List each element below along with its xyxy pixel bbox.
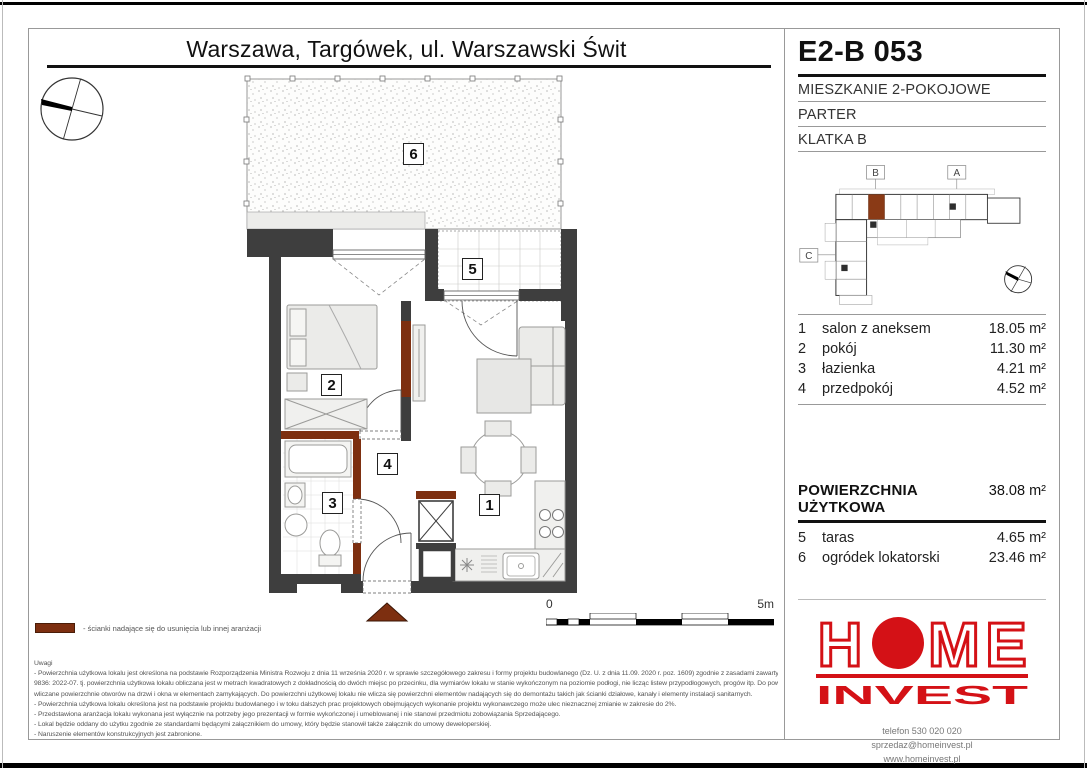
room-number-label-3: 3 [322,492,343,514]
brand-logo: H M E INVEST telefon 530 020 020 sprzeda… [798,610,1046,767]
content-frame: Warszawa, Targówek, ul. Warszawski Świt [28,28,1060,740]
outdoor-table: 5 taras 4.65 m² 6 ogródek lokatorski 23.… [798,523,1046,573]
room-name: ogródek lokatorski [822,550,989,566]
room-name: salon z aneksem [822,321,989,337]
brand-letter-e: E [985,611,1026,680]
divider [798,599,1046,600]
room-no: 1 [798,321,822,337]
wall-notch [297,584,341,593]
outdoor-row: 5 taras 4.65 m² [798,528,1046,548]
room-name: taras [822,530,997,546]
round-basin [285,514,307,536]
dining-table [471,431,527,487]
room-name: łazienka [822,361,997,377]
brand-rule [816,674,1028,678]
living-furniture [461,327,565,496]
notes: Uwagi - Powierzchnia użytkowa lokalu jes… [34,659,778,741]
room-row: 1 salon z aneksem 18.05 m² [798,319,1046,339]
info-panel: E2-B 053 MIESZKANIE 2-POKOJOWE PARTER KL… [784,29,1059,739]
contact-email: sprzedaz@homeinvest.pl [798,739,1046,753]
nightstand [287,373,307,391]
outdoor-row: 6 ogródek lokatorski 23.46 m² [798,548,1046,568]
scan-edge-right [1084,0,1085,768]
note-line: - Naruszenie elementów konstrukcyjnych j… [34,730,778,740]
room-row: 2 pokój 11.30 m² [798,339,1046,359]
usable-area-row: POWIERZCHNIA UŻYTKOWA 38.08 m² [798,477,1046,520]
overview-compass-icon [1005,266,1032,293]
note-line: 9836: 2022-07. tj. powierzchnia użytkowa… [34,679,778,689]
home-invest-logo: H M E INVEST [814,610,1030,710]
note-line: - Powierzchnia użytkowa lokalu określona… [34,700,778,710]
building-overview-map: B A [798,156,1047,314]
room-number-label-2: 2 [321,374,342,396]
legend: - ścianki nadające się do usunięcia lub … [35,623,261,633]
floor-plan-panel: Warszawa, Targówek, ul. Warszawski Świt [29,29,784,739]
note-line: - Powierzchnia użytkowa lokalu jest okre… [34,669,778,679]
room-number-label-4: 4 [377,453,398,475]
entrance-marker-b: B [872,168,879,179]
contact-info: telefon 530 020 020 sprzedaz@homeinvest.… [798,725,1046,767]
room-area: 4.65 m² [997,530,1046,546]
scale-end-label: 5m [757,597,774,611]
legend-swatch [35,623,75,633]
brand-letter-m: M [928,611,980,680]
niche [421,549,453,579]
legend-text: - ścianki nadające się do usunięcia lub … [83,624,261,633]
room-number-label-1: 1 [479,494,500,516]
usable-area-value: 38.08 m² [989,483,1046,499]
room-no: 3 [798,361,822,377]
room-area: 18.05 m² [989,321,1046,337]
brand-letter-o-circle [872,617,924,669]
scan-edge-top [0,2,1087,5]
contact-phone: telefon 530 020 020 [798,725,1046,739]
room-area: 23.46 m² [989,550,1046,566]
room-no: 6 [798,550,822,566]
room-name: pokój [822,341,990,357]
room-area: 4.21 m² [997,361,1046,377]
armchair [477,359,531,413]
room-area: 11.30 m² [990,341,1046,357]
room-area: 4.52 m² [997,381,1046,397]
note-line: - Przedstawiona aranżacja lokalu wykonan… [34,710,778,720]
entrance-marker-a: A [953,168,960,179]
scan-edge-left [2,0,3,768]
concrete-strip [247,212,425,229]
brand-letter-h: H [818,611,863,680]
room-row: 3 łazienka 4.21 m² [798,359,1046,379]
floor-level: PARTER [798,102,1046,127]
note-line: - Lokal będzie oddany do użytku zgodnie … [34,720,778,730]
scale-bar-graphic [546,613,774,627]
room-no: 4 [798,381,822,397]
rooms-table: 1 salon z aneksem 18.05 m² 2 pokój 11.30… [798,315,1046,404]
unit-code: E2-B 053 [798,29,1046,74]
scale-bar: 0 5m [546,597,774,632]
highlighted-unit [868,194,884,219]
entrance-arrow [367,603,407,621]
contact-website: www.homeinvest.pl [798,753,1046,767]
scale-start-label: 0 [546,597,553,611]
room-number-label-5: 5 [462,258,483,280]
room-no: 5 [798,530,822,546]
toilet [320,530,340,556]
entrance-marker-c: C [805,251,812,262]
room-row: 4 przedpokój 4.52 m² [798,379,1046,399]
notes-title: Uwagi [34,659,778,669]
room-no: 2 [798,341,822,357]
room-name: przedpokój [822,381,997,397]
usable-area-label: POWIERZCHNIA UŻYTKOWA [798,482,989,516]
room-number-label-6: 6 [403,143,424,165]
page: Warszawa, Targówek, ul. Warszawski Świt [0,0,1087,768]
brand-invest: INVEST [816,680,1028,710]
staircase: KLATKA B [798,127,1046,152]
note-line: wliczane powierzchnie otworów na drzwi i… [34,690,778,700]
unit-type: MIESZKANIE 2-POKOJOWE [798,77,1046,102]
